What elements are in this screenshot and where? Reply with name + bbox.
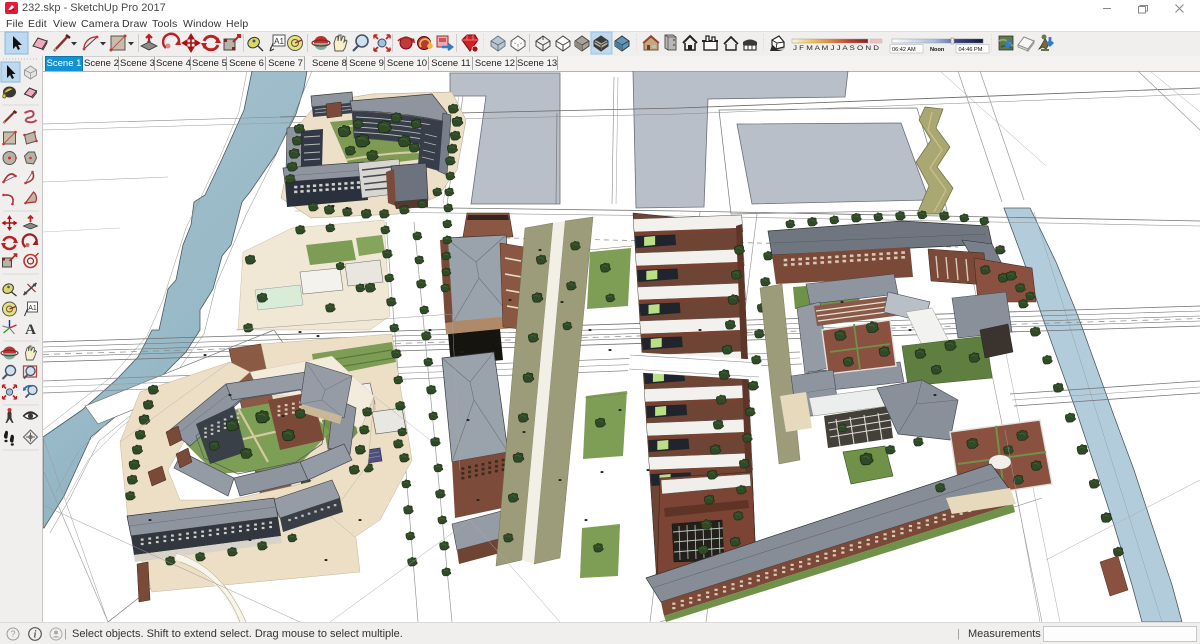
svg-text:J F M A M J J A S O N D: J F M A M J J A S O N D <box>793 46 880 52</box>
svg-text:Noon: Noon <box>930 47 945 53</box>
svg-text:A1: A1 <box>274 37 284 46</box>
svg-text:04:46 PM: 04:46 PM <box>959 47 983 53</box>
svg-text:i: i <box>34 630 37 641</box>
svg-text:A: A <box>25 322 36 338</box>
svg-text:?: ? <box>10 629 15 639</box>
svg-text:A1: A1 <box>28 305 37 312</box>
svg-text:06:42 AM: 06:42 AM <box>892 47 916 53</box>
